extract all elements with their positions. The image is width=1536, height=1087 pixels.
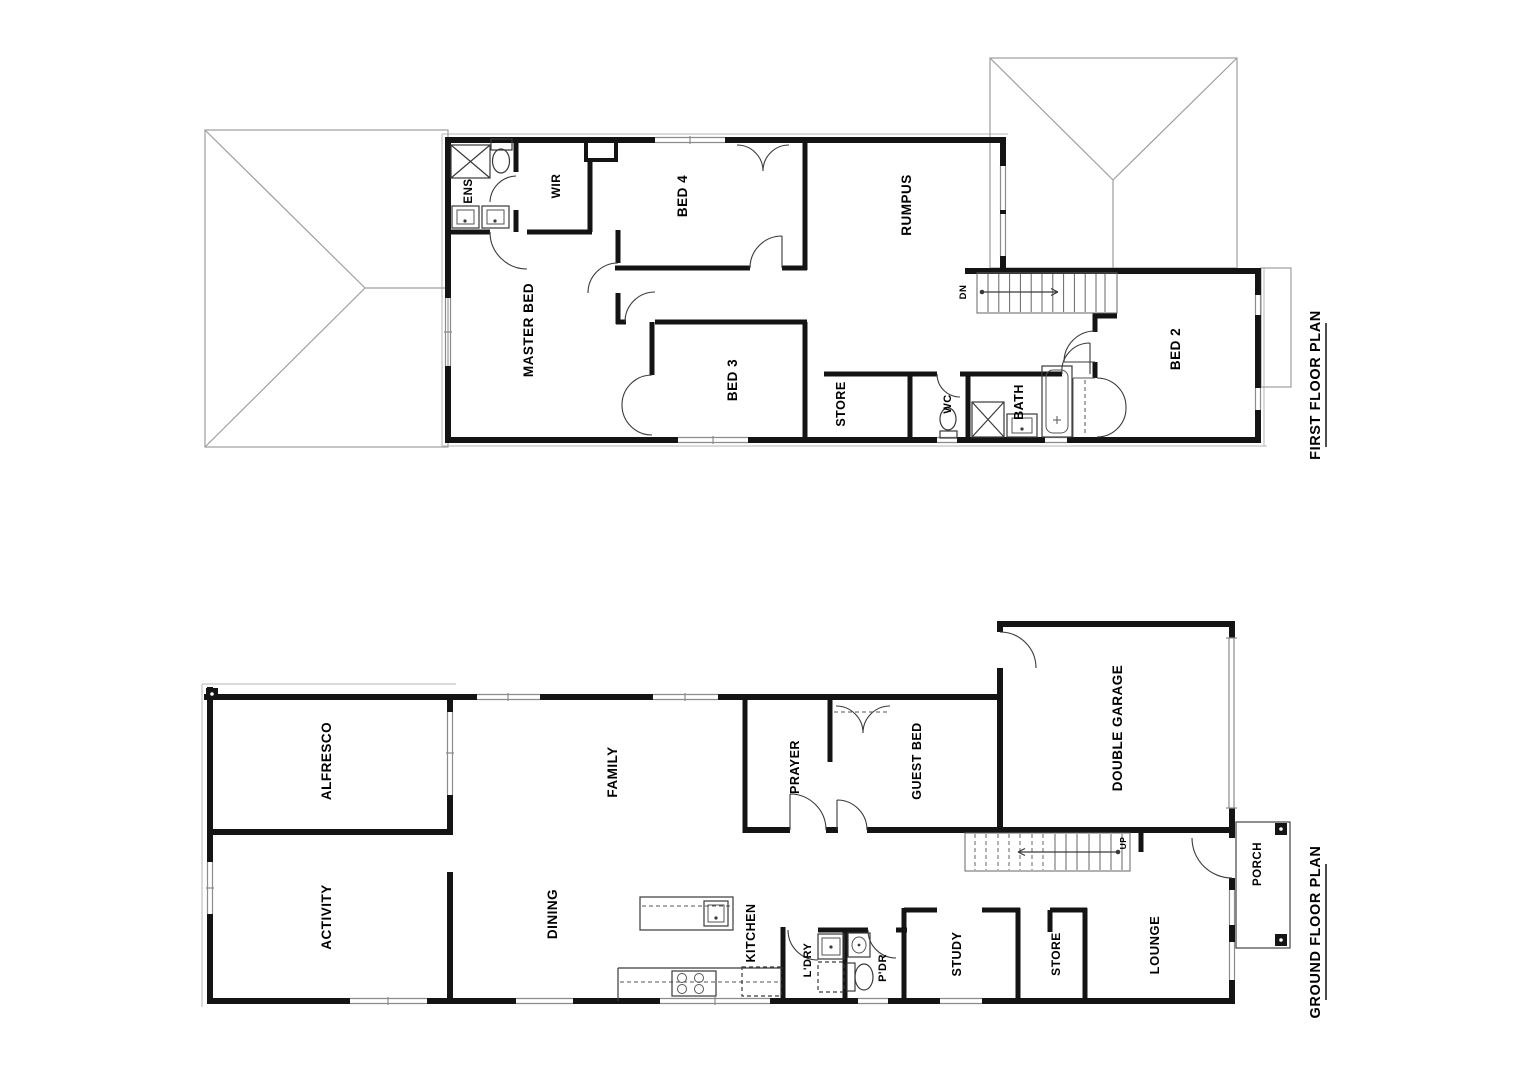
first-floor-windows — [444, 136, 1261, 444]
first-floor-plan-title: FIRST FLOOR PLAN — [1308, 310, 1324, 460]
room-label-dining: DINING — [545, 889, 560, 939]
ground-floor-windows — [206, 638, 1237, 1005]
entry-door-arc — [1192, 838, 1232, 878]
room-label-bed2: BED 2 — [1168, 328, 1183, 370]
first-floor-exterior-walls — [445, 137, 1261, 443]
floor-plan-svg: DN ENS WIR MASTER BED BED 4 RUMPUS BED 3… — [0, 0, 1536, 1087]
ground-floor-plan: UP ALFRESCO ACTIVITY FAMILY DINING KITCH… — [202, 621, 1326, 1018]
room-label-wc: WC — [942, 394, 954, 413]
kitchen-island — [640, 897, 733, 930]
toilet-cistern-icon — [847, 963, 855, 991]
room-label-wir: WIR — [549, 174, 563, 199]
toilet-icon — [855, 964, 873, 990]
washer-dashed — [818, 962, 844, 992]
first-floor-plan: DN ENS WIR MASTER BED BED 4 RUMPUS BED 3… — [205, 58, 1326, 460]
room-label-double-garage: DOUBLE GARAGE — [1110, 665, 1125, 792]
room-label-study: STUDY — [950, 931, 964, 976]
stair-direction-arrow — [1018, 849, 1118, 856]
room-label-kitchen: KITCHEN — [744, 903, 758, 962]
room-label-porch: PORCH — [1252, 842, 1264, 886]
room-label-lounge: LOUNGE — [1147, 916, 1162, 975]
vanity-basin-icon — [452, 206, 479, 228]
garage-door-panel — [1226, 638, 1237, 808]
room-label-bed4: BED 4 — [675, 175, 690, 217]
ground-floor-exterior-walls — [204, 621, 1235, 1004]
stair-direction-label: UP — [1118, 837, 1128, 850]
first-floor-room-labels: ENS WIR MASTER BED BED 4 RUMPUS BED 3 ST… — [463, 174, 1183, 427]
room-label-ens: ENS — [463, 178, 475, 203]
room-label-prayer: PRAYER — [788, 740, 802, 794]
stair-direction-label: DN — [958, 285, 969, 300]
room-label-guest-bed: GUEST BED — [910, 722, 924, 799]
room-label-bed3: BED 3 — [725, 359, 740, 401]
room-label-store-gf: STORE — [1049, 932, 1063, 976]
toilet-icon — [493, 149, 510, 173]
first-floor-doors — [490, 145, 1126, 437]
first-floor-roofs — [205, 58, 1291, 447]
room-label-master-bed: MASTER BED — [521, 283, 536, 377]
ground-floor-room-labels: ALFRESCO ACTIVITY FAMILY DINING KITCHEN … — [319, 665, 1264, 982]
floor-plan-page: DN ENS WIR MASTER BED BED 4 RUMPUS BED 3… — [0, 0, 1536, 1087]
ground-floor-title: GROUND FLOOR PLAN — [1308, 846, 1326, 1019]
room-label-activity: ACTIVITY — [319, 884, 334, 950]
room-label-alfresco: ALFRESCO — [319, 722, 334, 800]
room-label-bath: BATH — [1012, 384, 1026, 420]
first-floor-title: FIRST FLOOR PLAN — [1308, 310, 1326, 460]
room-label-powder: P'DR — [877, 954, 889, 982]
room-label-laundry: L'DRY — [802, 943, 814, 978]
ground-floor-stairs: UP — [965, 833, 1130, 871]
first-floor-fixtures — [451, 139, 1072, 438]
room-label-store-ff: STORE — [834, 381, 848, 426]
first-floor-stairs: DN — [958, 273, 1117, 313]
room-label-rumpus: RUMPUS — [899, 174, 914, 236]
vanity-basin-icon — [482, 206, 509, 228]
room-label-family: FAMILY — [605, 746, 620, 797]
ground-floor-plan-title: GROUND FLOOR PLAN — [1308, 846, 1324, 1019]
